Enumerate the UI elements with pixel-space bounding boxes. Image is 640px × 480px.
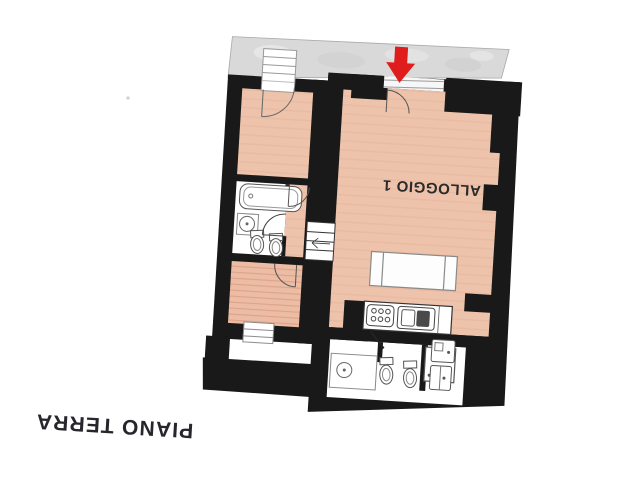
appliance: [431, 339, 455, 362]
window: [243, 322, 274, 344]
washbasin-counter: [329, 353, 377, 390]
table: [370, 251, 458, 290]
floor-label: PIANO TERRA: [35, 409, 194, 442]
bidet: [403, 361, 417, 388]
toilet: [379, 357, 393, 384]
wall-link: [205, 336, 230, 361]
scan-speck: [126, 96, 129, 99]
bidet: [269, 233, 283, 257]
floor-plan-group: ALLOGGIO 1 PIANO TERRA: [35, 22, 526, 461]
internal-stairs: [305, 222, 335, 262]
kitchen-counter: [363, 301, 453, 334]
room-bottom-left: [228, 261, 303, 327]
french-window-steps: [261, 49, 297, 93]
floor-plan-page: ALLOGGIO 1 PIANO TERRA: [0, 0, 640, 480]
floor-plan-svg: ALLOGGIO 1 PIANO TERRA: [0, 0, 640, 480]
room-top-left: [237, 88, 313, 178]
bathtub: [239, 183, 302, 212]
appliance: [429, 365, 451, 390]
kitchen-sink: [397, 306, 435, 330]
